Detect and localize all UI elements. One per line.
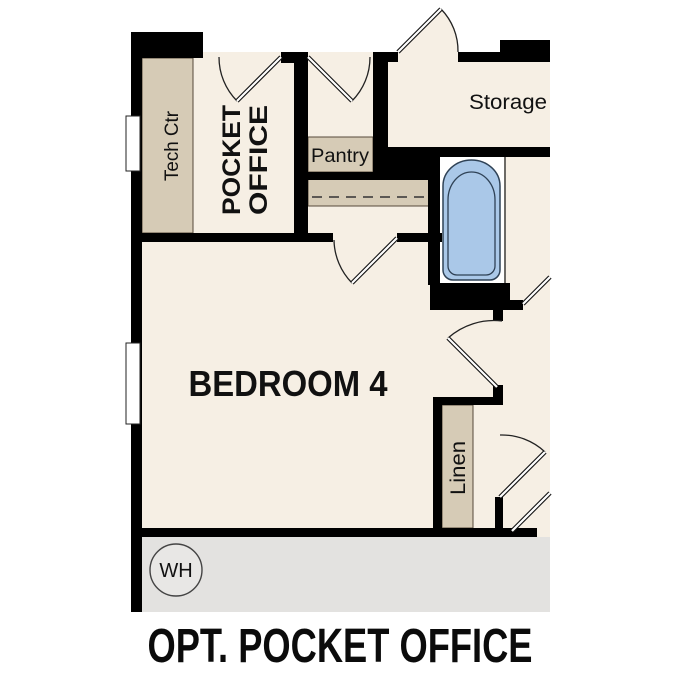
wall-top-left-block — [131, 32, 203, 58]
pocket-office-label-line1: POCKET — [218, 105, 246, 215]
door-jamb-linen-bottom — [495, 497, 503, 530]
garage-floor — [142, 537, 550, 612]
bathtub-icon — [443, 160, 500, 280]
window-icon — [126, 343, 140, 424]
wall-top-mid — [388, 52, 398, 62]
wall-pocket-office-right — [294, 52, 308, 233]
drop-zone-shelf — [308, 178, 430, 206]
water-heater-label: WH — [159, 560, 192, 582]
wall-storage-top-thick — [500, 40, 550, 52]
pocket-office-label: POCKET OFFICE — [218, 105, 273, 215]
wall-linen-top — [433, 397, 503, 405]
wall-below-tub-stub — [495, 300, 523, 310]
wall-linen-left — [433, 397, 442, 530]
water-heater: WH — [150, 544, 202, 596]
wall-pantry-storage — [373, 52, 388, 180]
bath-area — [440, 157, 505, 283]
pantry-label: Pantry — [311, 145, 369, 167]
door-jamb-bath — [493, 310, 503, 321]
door-jamb-linen-top — [493, 385, 503, 405]
storage-label: Storage — [469, 91, 547, 114]
wall-bedroom-bottom — [131, 528, 537, 537]
linen-label: Linen — [447, 441, 470, 495]
plan-title: OPT. POCKET OFFICE — [148, 620, 533, 673]
window-icon — [126, 116, 140, 171]
wall-bedroom-top-right — [397, 233, 442, 242]
wall-bedroom-top-left — [131, 233, 333, 242]
bedroom4-label: BEDROOM 4 — [189, 363, 388, 404]
pocket-office-label-line2: OFFICE — [245, 105, 273, 215]
wall-tub-left — [428, 157, 440, 285]
tech-ctr-label: Tech Ctr — [162, 110, 183, 181]
floor-plan: WH Tech Ctr POCKET OFFICE Pantry Storage… — [0, 0, 687, 687]
wall-storage-top — [458, 52, 550, 62]
